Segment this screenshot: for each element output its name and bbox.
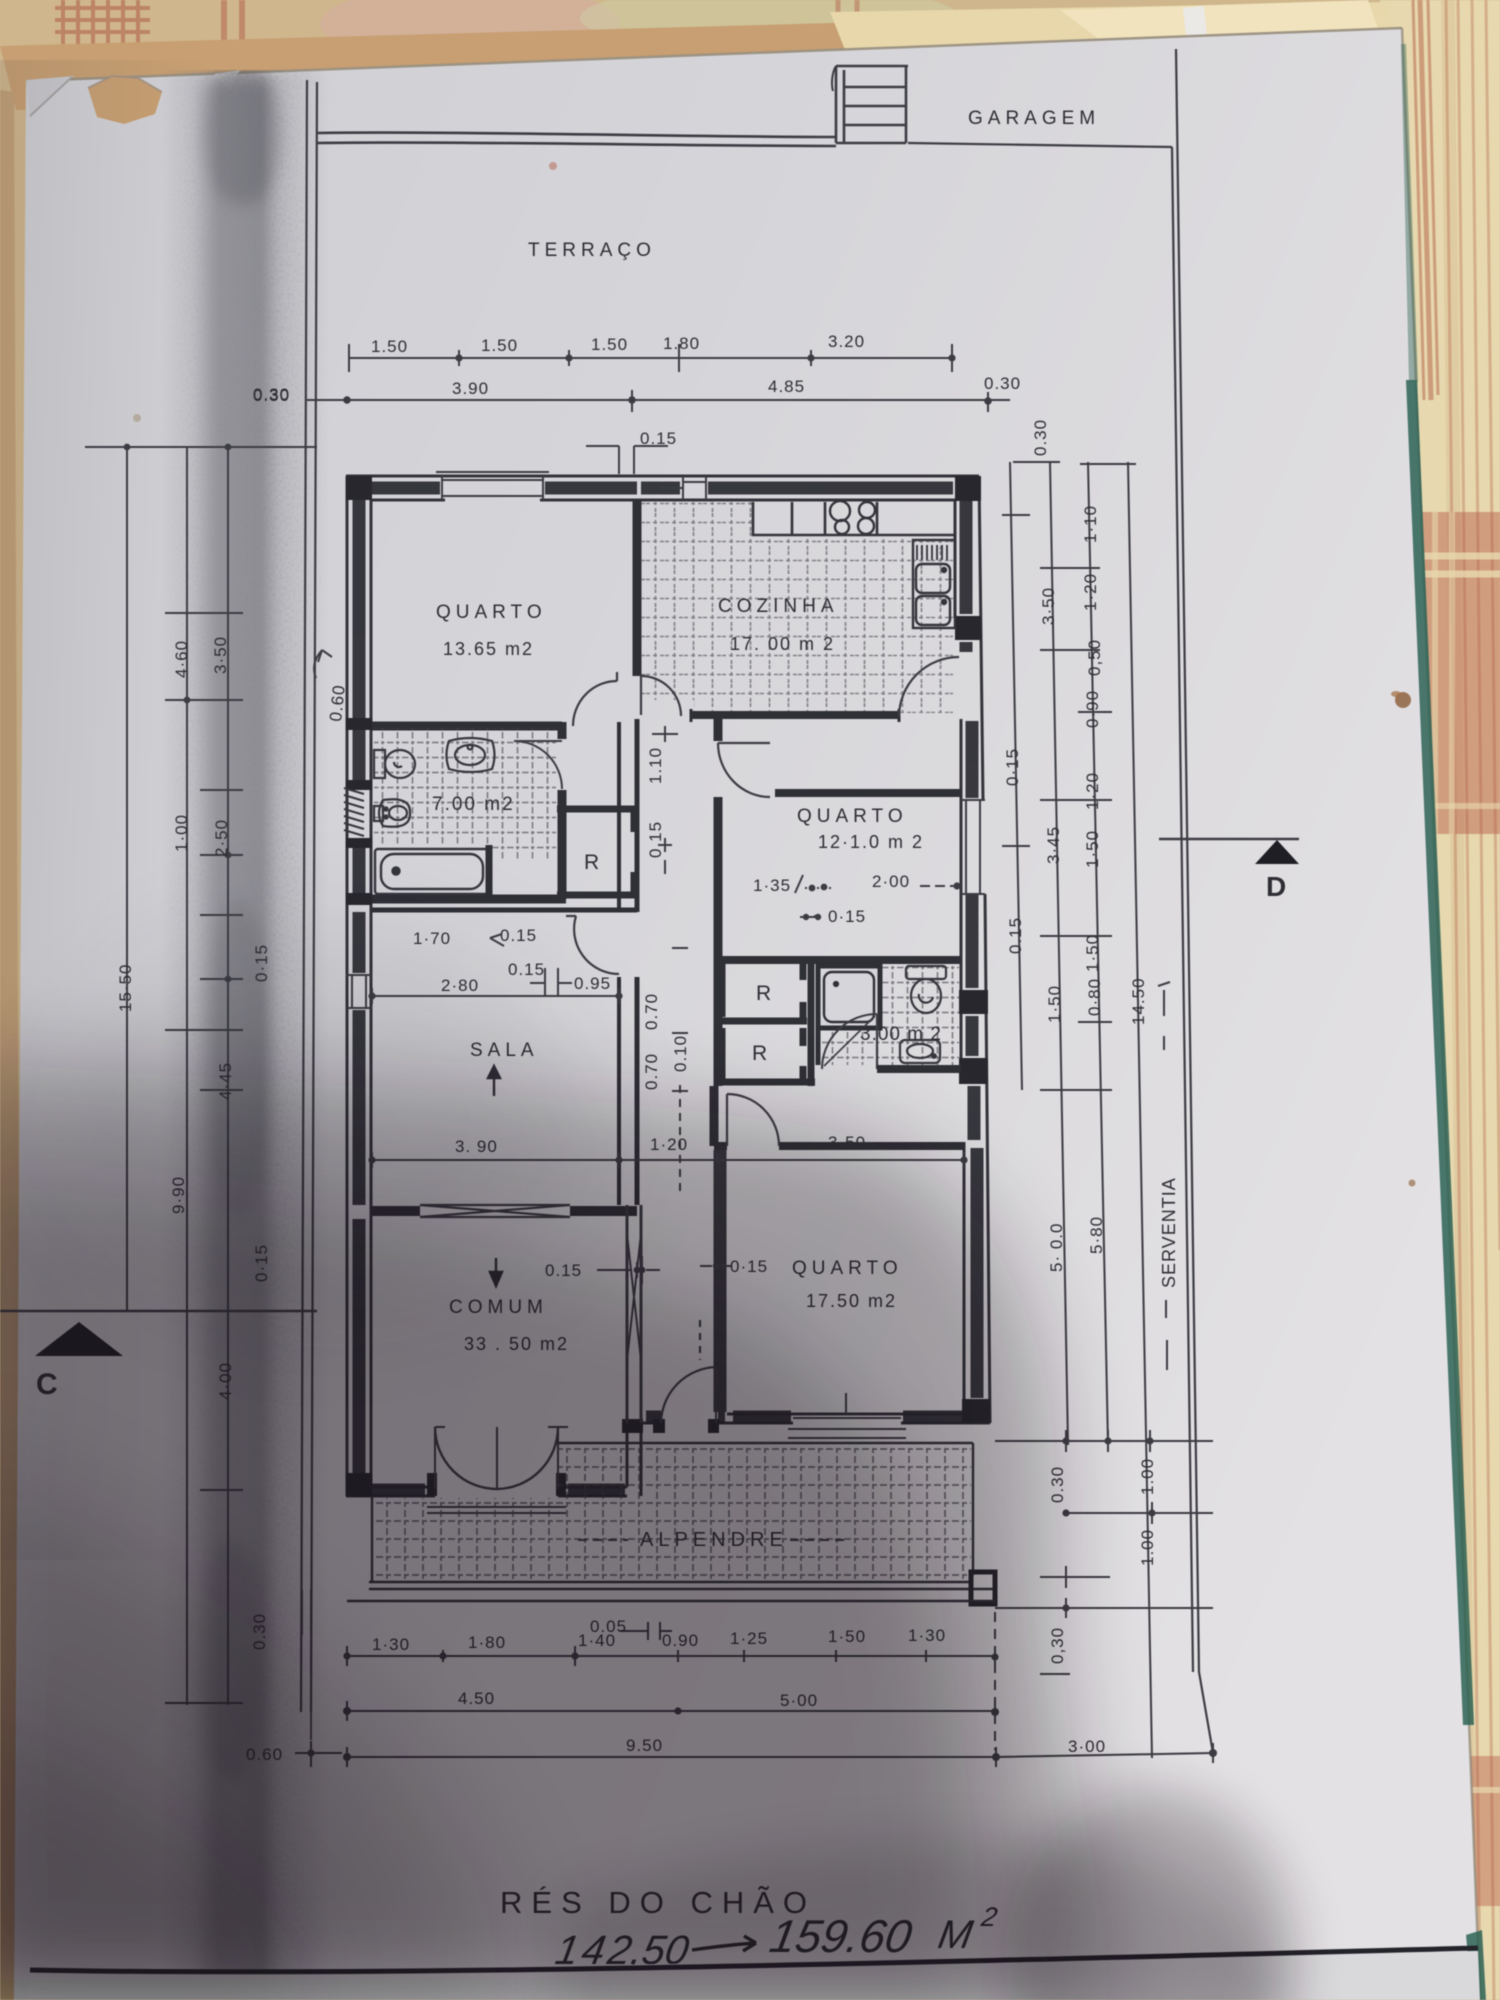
svg-text:1.00: 1.00 [1138,1529,1157,1566]
svg-text:3·50: 3·50 [1039,587,1058,625]
svg-text:0·90: 0·90 [1083,690,1102,728]
svg-text:4.85: 4.85 [768,377,805,396]
svg-text:SERVENTIA: SERVENTIA [1159,1177,1179,1288]
svg-text:2·50: 2·50 [212,819,231,857]
svg-text:QUARTO: QUARTO [797,806,908,827]
svg-text:1·50: 1·50 [1083,934,1102,972]
svg-text:1·50: 1·50 [1083,830,1102,868]
svg-text:0.10: 0.10 [671,1035,690,1072]
svg-text:0.30: 0.30 [1031,419,1050,456]
svg-text:1·35: 1·35 [753,876,791,895]
svg-text:R: R [752,1042,767,1065]
svg-text:1.50: 1.50 [481,336,518,355]
svg-text:1·10: 1·10 [1081,505,1100,543]
svg-text:1·20: 1·20 [1081,573,1100,611]
svg-text:3·45: 3·45 [1044,826,1063,864]
svg-text:GARAGEM: GARAGEM [968,108,1100,129]
svg-text:2·00: 2·00 [872,872,910,891]
svg-text:R: R [584,851,599,874]
svg-text:R: R [756,982,771,1005]
svg-text:7.00 m2: 7.00 m2 [432,794,515,815]
svg-text:0.30: 0.30 [984,374,1021,393]
svg-text:13.65 m2: 13.65 m2 [443,639,534,659]
svg-text:0,50: 0,50 [1085,639,1104,676]
svg-text:1.00: 1.00 [1138,1458,1157,1495]
svg-text:0.15: 0.15 [646,821,665,858]
svg-text:5· 0.0: 5· 0.0 [1047,1223,1066,1272]
svg-text:D: D [1266,871,1286,902]
svg-text:17. 00 m 2: 17. 00 m 2 [730,634,835,654]
svg-text:0.95: 0.95 [574,974,611,993]
svg-text:14.50: 14.50 [1129,977,1148,1025]
svg-text:0.15: 0.15 [1006,917,1025,954]
svg-text:COZINHA: COZINHA [718,596,839,617]
svg-text:1·50: 1·50 [1045,985,1064,1023]
svg-text:0.15: 0.15 [500,926,537,945]
svg-text:3.20: 3.20 [828,332,865,351]
svg-text:1.80: 1.80 [663,334,700,353]
svg-text:0·80: 0·80 [1085,978,1104,1016]
svg-text:0.70: 0.70 [642,1053,661,1090]
svg-text:3·50: 3·50 [211,636,230,674]
svg-text:1·20: 1·20 [1083,772,1102,810]
svg-text:TERRAÇO: TERRAÇO [528,240,656,261]
svg-text:0·15: 0·15 [828,907,866,926]
svg-text:0.15: 0.15 [640,429,677,448]
svg-text:1.50: 1.50 [371,337,408,356]
svg-text:0.70: 0.70 [642,993,661,1030]
svg-text:1.50: 1.50 [591,335,628,354]
svg-text:12·1.0 m 2: 12·1.0 m 2 [818,832,924,852]
svg-text:3·00: 3·00 [1068,1737,1106,1756]
svg-text:5·80: 5·80 [1087,1216,1106,1254]
svg-text:3.00 m 2: 3.00 m 2 [860,1024,942,1045]
svg-text:0.15: 0.15 [508,960,545,979]
svg-text:0.60: 0.60 [326,684,349,723]
svg-text:1.10: 1.10 [646,747,665,784]
svg-text:3.90: 3.90 [452,379,489,398]
svg-text:QUARTO: QUARTO [436,602,547,623]
svg-text:0.30: 0.30 [253,385,290,404]
svg-text:0·15: 0·15 [1003,748,1022,786]
